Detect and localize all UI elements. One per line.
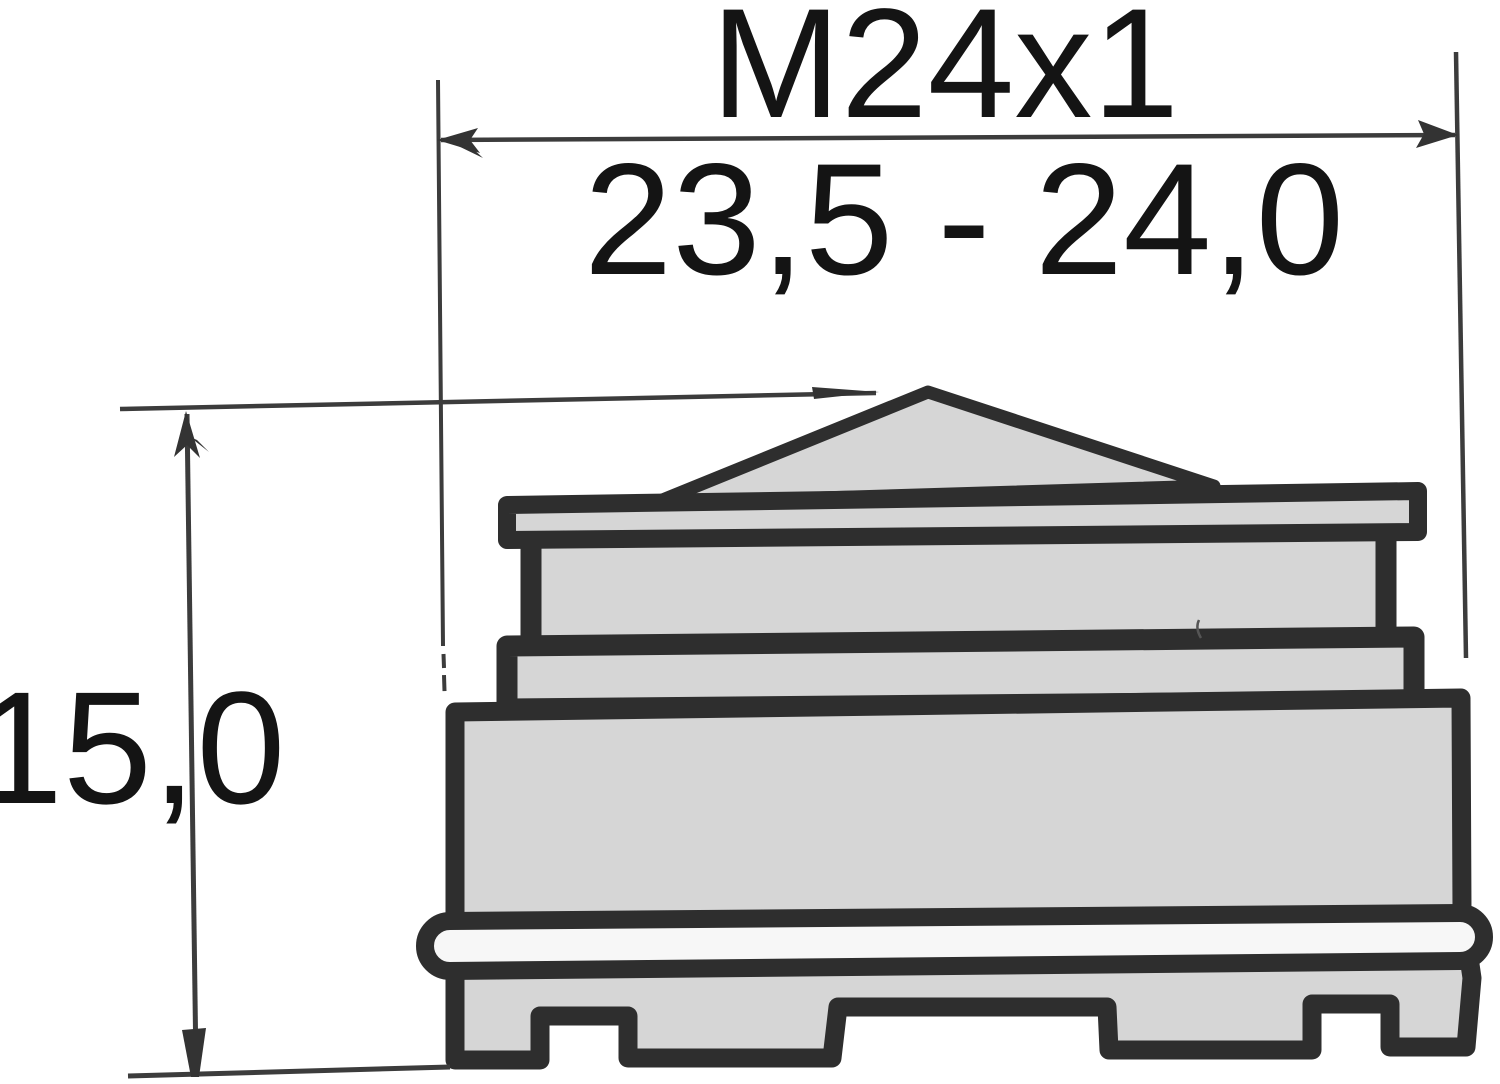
svg-text:M24x1: M24x1 xyxy=(711,0,1179,151)
svg-text:23,5 - 24,0: 23,5 - 24,0 xyxy=(584,130,1344,308)
svg-text:15,0: 15,0 xyxy=(0,658,285,837)
